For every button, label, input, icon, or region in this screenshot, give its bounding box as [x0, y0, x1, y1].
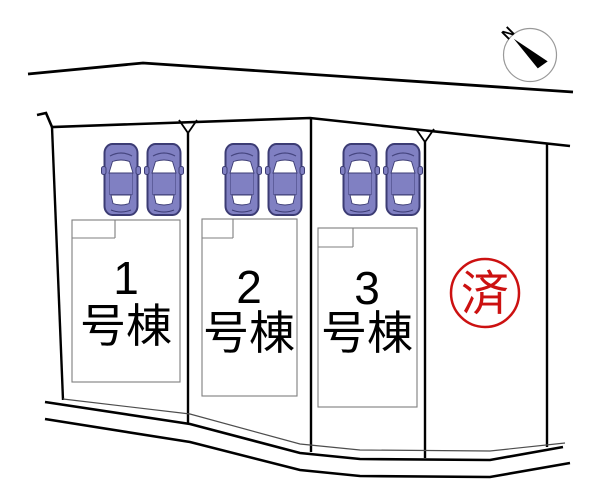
building-3-entry-notch	[318, 228, 353, 247]
site-plan-diagram: 1 号棟 2 号棟 3 号棟 済 N	[0, 0, 600, 502]
building-1-entry-notch	[72, 220, 115, 238]
building-3-suffix: 号棟	[321, 307, 413, 359]
car-icon-5	[341, 144, 380, 215]
car-icon-1	[102, 144, 141, 215]
building-1: 1 号棟	[72, 220, 180, 382]
sold-stamp-label: 済	[461, 268, 509, 321]
car-icon-2	[145, 144, 184, 215]
building-3: 3 号棟	[318, 228, 417, 407]
top-road-edge	[28, 63, 573, 92]
building-1-number: 1	[113, 252, 139, 304]
bottom-setback-line	[63, 399, 565, 451]
site-plan-svg: 1 号棟 2 号棟 3 号棟 済 N	[0, 0, 600, 502]
building-2-entry-notch	[202, 219, 233, 238]
bottom-road-lower-edge	[45, 419, 570, 477]
site-left-boundary	[52, 127, 63, 400]
building-2-number: 2	[236, 261, 262, 313]
car-icon-4	[266, 144, 305, 215]
compass: N	[499, 22, 557, 82]
site-top-boundary	[37, 113, 570, 146]
building-2-suffix: 号棟	[203, 307, 295, 359]
building-2: 2 号棟	[202, 219, 297, 396]
car-icon-6	[384, 144, 423, 215]
sold-stamp: 済	[451, 259, 519, 327]
car-icon-3	[223, 144, 262, 215]
building-1-suffix: 号棟	[80, 300, 172, 352]
